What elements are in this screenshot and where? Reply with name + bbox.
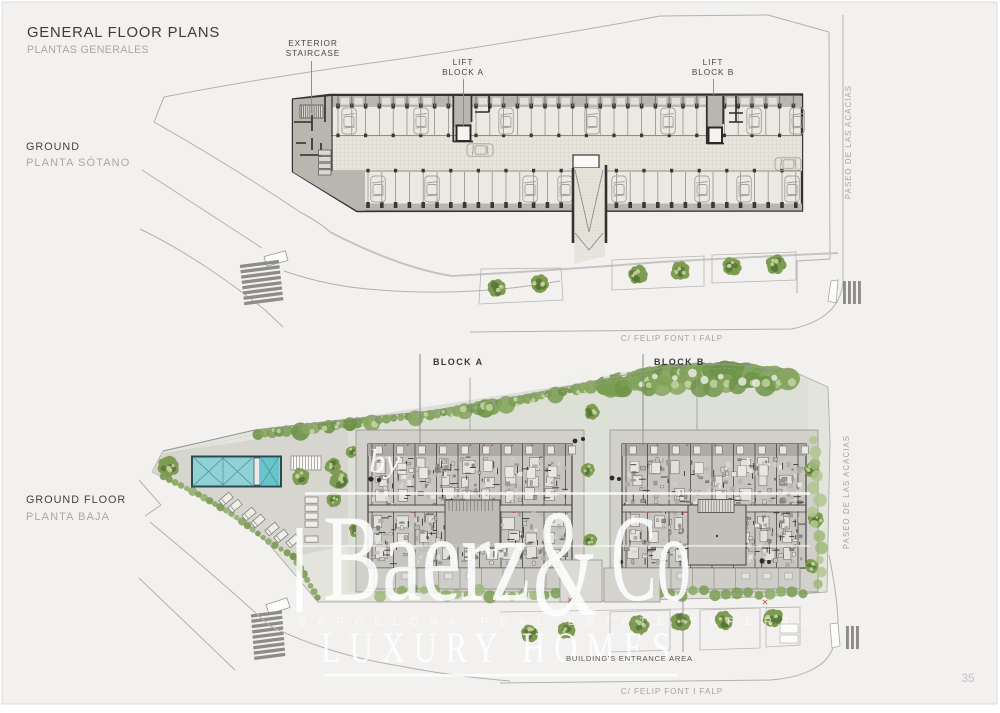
svg-text:C/ FELIP FONT I FALP: C/ FELIP FONT I FALP [621, 334, 723, 343]
svg-text:PLANTA SÓTANO: PLANTA SÓTANO [26, 156, 130, 169]
svg-text:GENERAL FLOOR PLANS: GENERAL FLOOR PLANS [27, 25, 220, 41]
svg-text:LUXURY HOMES: LUXURY HOMES [321, 625, 679, 672]
svg-text:LIFT: LIFT [453, 57, 474, 67]
svg-text:35: 35 [961, 671, 975, 685]
svg-text:PLANTA BAJA: PLANTA BAJA [26, 511, 110, 523]
svg-text:Baerz: Baerz [323, 490, 530, 627]
svg-text:LIFT: LIFT [703, 57, 724, 67]
svg-text:BLOCK A: BLOCK A [433, 357, 483, 367]
svg-text:PASEO DE LAS ACACIAS: PASEO DE LAS ACACIAS [842, 435, 851, 549]
svg-text:by: by [369, 444, 401, 480]
svg-text:STAIRCASE: STAIRCASE [286, 48, 341, 58]
svg-text:BLOCK A: BLOCK A [442, 67, 484, 77]
svg-text:GROUND: GROUND [26, 141, 80, 153]
svg-text:EXTERIOR: EXTERIOR [288, 38, 338, 48]
svg-text:PLANTAS GENERALES: PLANTAS GENERALES [27, 44, 149, 56]
svg-text:BUILDING'S ENTRANCE AREA: BUILDING'S ENTRANCE AREA [566, 654, 693, 663]
svg-text:GROUND FLOOR: GROUND FLOOR [26, 494, 126, 506]
svg-text:PASEO DE LAS ACACIAS: PASEO DE LAS ACACIAS [844, 85, 853, 199]
svg-text:Co: Co [611, 490, 691, 627]
svg-text:BLOCK B: BLOCK B [692, 67, 734, 77]
svg-text:BLOCK B: BLOCK B [654, 357, 705, 367]
svg-text:C/ FELIP FONT I FALP: C/ FELIP FONT I FALP [621, 687, 723, 696]
